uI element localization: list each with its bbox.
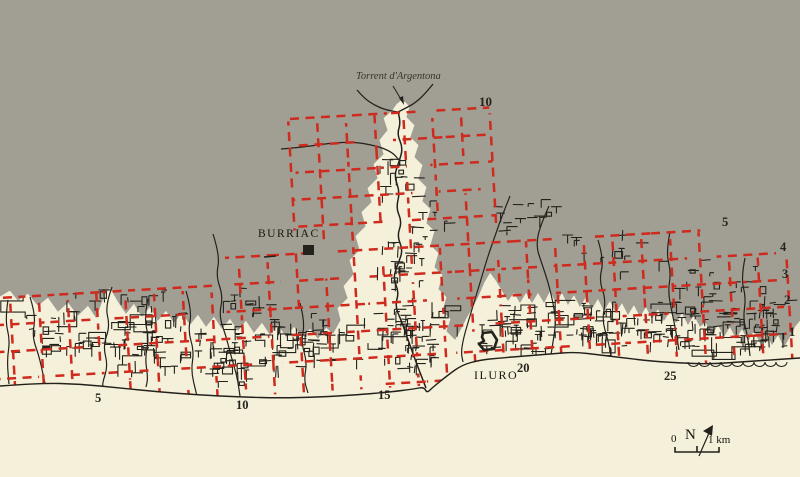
centuriation-map: Torrent d'Argentona 10 BURRIAC ILURO 5 4… (0, 0, 800, 477)
grid-number-bottom-5: 5 (95, 392, 101, 405)
burriac-site-square (303, 245, 314, 255)
grid-number-bottom-25: 25 (664, 370, 677, 383)
grid-number-right-3: 3 (782, 268, 788, 281)
grid-number-right-4: 4 (780, 241, 786, 254)
grid-number-right-5: 5 (722, 216, 728, 229)
grid-number-right-2: 2 (784, 294, 790, 307)
scale-distance-label: 1 km (708, 435, 730, 446)
grid-number-right-1: 1 (789, 326, 795, 339)
grid-number-bottom-10: 10 (236, 399, 249, 412)
grid-number-bottom-15: 15 (378, 389, 391, 402)
grid-number-bottom-20: 20 (517, 362, 530, 375)
scale-zero-label: 0 (671, 434, 677, 445)
torrent-argentona-label: Torrent d'Argentona (356, 72, 441, 83)
burriac-dash-mark (264, 256, 276, 257)
burriac-label: BURRIAC (258, 229, 320, 241)
north-label: N (685, 428, 696, 443)
iluro-label: ILURO (474, 369, 518, 381)
grid-number-top-10: 10 (479, 95, 492, 108)
